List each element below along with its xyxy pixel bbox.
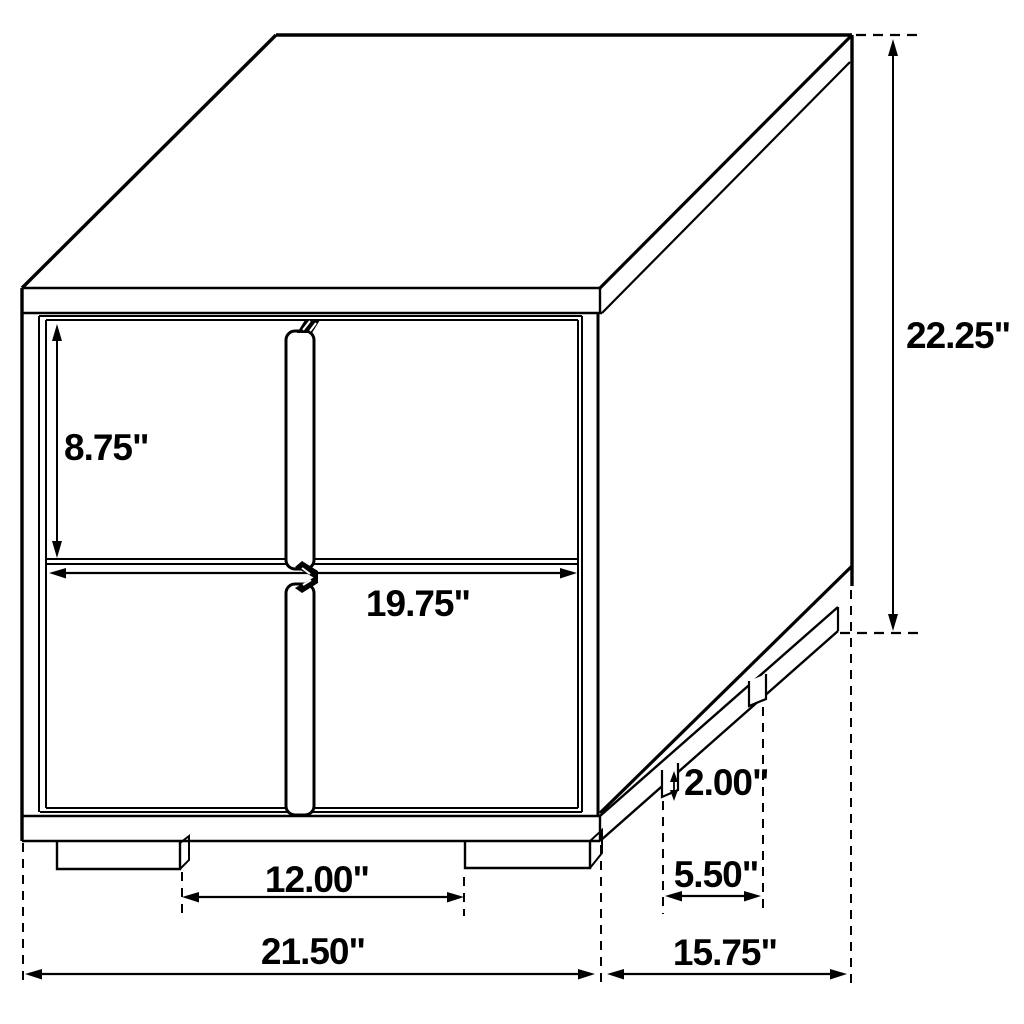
top-panel (22, 35, 852, 313)
base-plinth (22, 607, 838, 841)
arrow-down-icon (888, 614, 898, 631)
arrow-up-icon (52, 324, 62, 341)
dim-drawer-height: 8.75" (52, 324, 149, 558)
arrow-down-icon (670, 790, 678, 801)
feet (57, 674, 766, 869)
arrow-right-icon (830, 969, 847, 980)
dim-side-feet-gap-label: 5.50" (674, 854, 759, 895)
nightstand-dimension-diagram: 8.75" 19.75" 22.25" 12.00" 21.50" (0, 0, 1024, 1024)
dim-drawer-height-label: 8.75" (64, 427, 149, 468)
handle-bottom-drawer (286, 575, 318, 815)
arrow-left-icon (607, 969, 624, 980)
arrow-right-icon (560, 568, 577, 579)
arrow-right-icon (578, 969, 595, 980)
dim-overall-height-label: 22.25" (906, 315, 1010, 356)
arrow-left-icon (182, 892, 199, 903)
dim-overall-width-label: 21.50" (261, 931, 365, 972)
arrow-left-icon (49, 568, 66, 579)
dim-front-feet-gap: 12.00" (182, 859, 464, 916)
arrow-up-icon (888, 39, 898, 56)
dim-front-feet-gap-label: 12.00" (265, 859, 369, 900)
arrow-left-icon (25, 969, 42, 980)
dim-foot-height-label: 2.00" (684, 762, 769, 803)
handle-top-drawer (286, 320, 320, 580)
dim-foot-height: 2.00" (670, 762, 769, 803)
dim-drawer-width-label: 19.75" (366, 583, 470, 624)
dim-overall-height: 22.25" (840, 35, 1010, 633)
dim-overall-depth-label: 15.75" (673, 932, 777, 973)
diagram-svg: 8.75" 19.75" 22.25" 12.00" 21.50" (0, 0, 1024, 1024)
arrow-right-icon (447, 892, 464, 903)
front-right-foot (465, 841, 590, 868)
arrow-down-icon (52, 541, 62, 558)
front-left-foot (57, 841, 180, 869)
